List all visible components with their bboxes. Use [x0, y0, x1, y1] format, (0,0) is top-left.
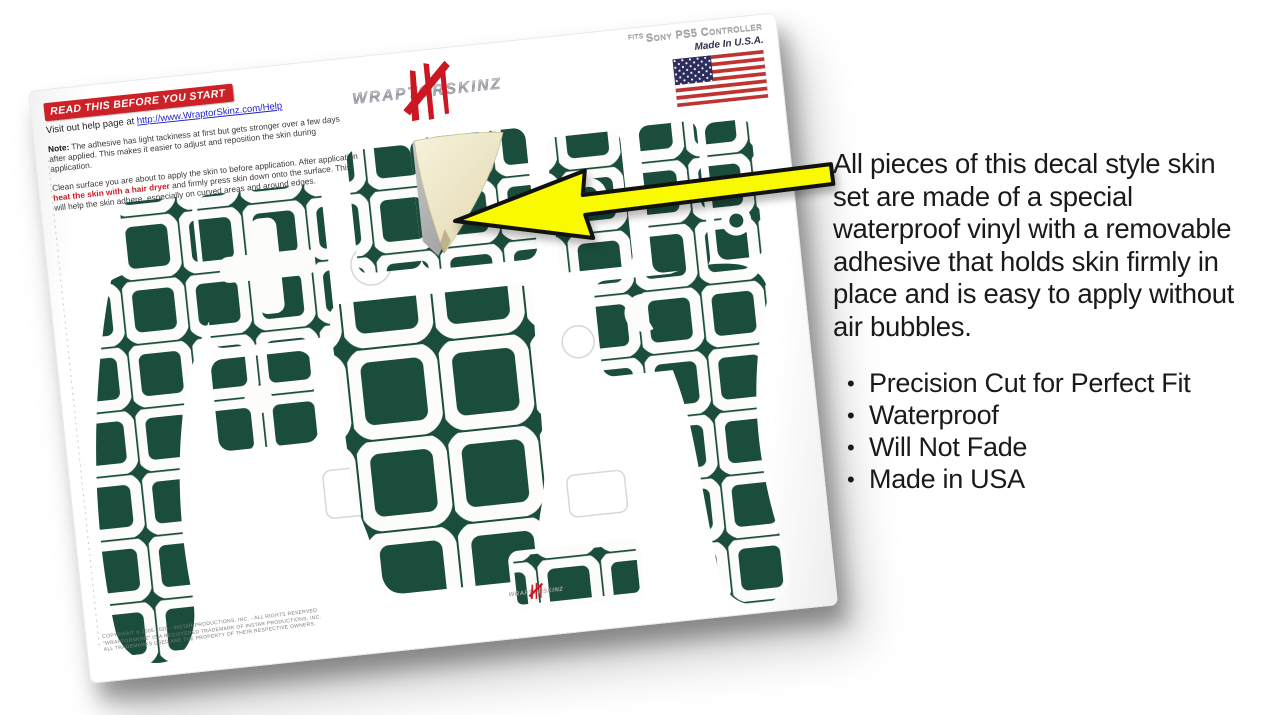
feature-item: Waterproof [869, 399, 1253, 431]
product-image: WRAPTORSKINZ READ THIS BEFORE YOU START … [0, 0, 1280, 715]
skin-piece-strip [704, 119, 764, 261]
origin-block: FITSSony PS5 Controller Made In U.S.A. [630, 21, 770, 116]
feature-item: Will Not Fade [869, 431, 1253, 463]
skin-piece-bottom [510, 541, 643, 608]
skin-sheet: WRAPTORSKINZ READ THIS BEFORE YOU START … [28, 12, 838, 683]
fits-label: FITS [628, 33, 644, 42]
skin-piece-ring [546, 130, 634, 273]
feature-list: Precision Cut for Perfect Fit Waterproof… [833, 367, 1253, 495]
skin-piece-peeled [409, 127, 538, 270]
feature-item: Precision Cut for Perfect Fit [869, 367, 1253, 399]
feature-item: Made in USA [869, 463, 1253, 495]
perforation-line [48, 160, 99, 647]
skin-piece-dpad [196, 183, 336, 349]
skin-piece-right-grip [640, 259, 800, 614]
skin-piece-stickhole [210, 350, 319, 452]
description-paragraph: All pieces of this decal style skin set … [833, 148, 1253, 343]
product-description: All pieces of this decal style skin set … [833, 148, 1253, 495]
skin-piece [638, 120, 711, 273]
